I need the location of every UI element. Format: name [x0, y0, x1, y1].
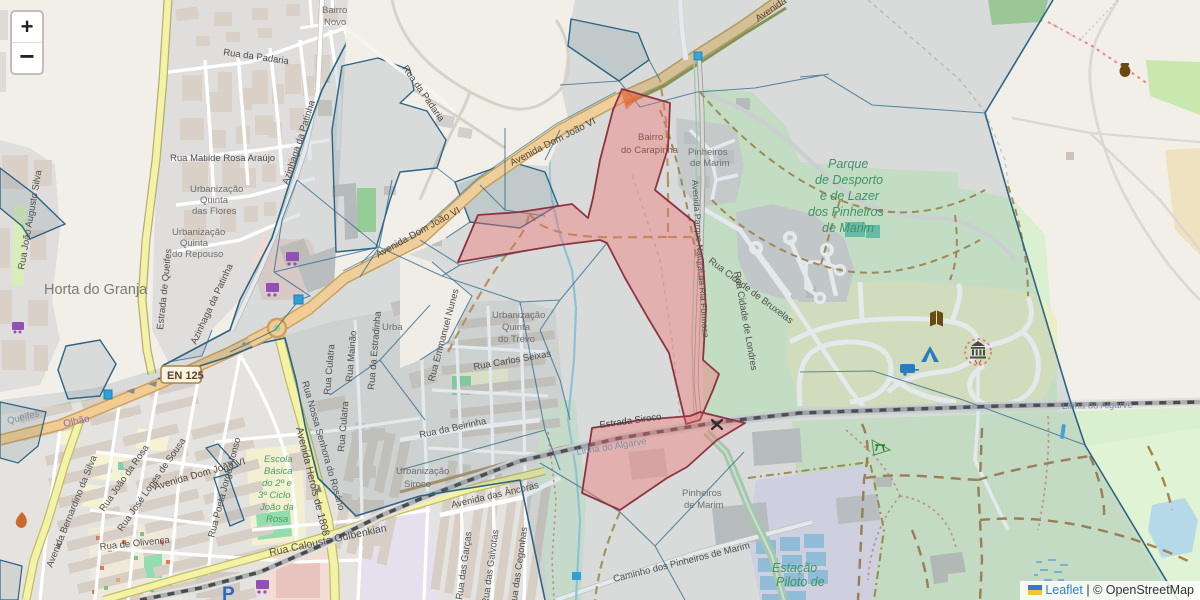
svg-text:Piloto de: Piloto de — [776, 575, 825, 589]
svg-text:Estação: Estação — [772, 561, 817, 575]
svg-text:de Marim: de Marim — [822, 221, 874, 235]
svg-text:Novo: Novo — [324, 17, 346, 28]
svg-text:3º Ciclo: 3º Ciclo — [258, 490, 291, 501]
svg-text:Urbanização: Urbanização — [492, 310, 545, 321]
svg-text:Quinta: Quinta — [180, 238, 209, 249]
svg-text:Linha do Algarve: Linha do Algarve — [1062, 400, 1133, 412]
svg-text:Básica: Básica — [264, 466, 293, 477]
svg-text:Quinta: Quinta — [200, 195, 229, 206]
svg-text:EN 125: EN 125 — [167, 370, 204, 382]
svg-text:Rua Matilde Rosa Araújo: Rua Matilde Rosa Araújo — [170, 153, 275, 164]
svg-text:Urbanização: Urbanização — [172, 227, 225, 238]
svg-text:Urbanização: Urbanização — [396, 466, 449, 477]
svg-text:do 2º e: do 2º e — [262, 478, 292, 489]
svg-text:Rosa: Rosa — [266, 514, 288, 525]
svg-text:de Marim: de Marim — [684, 500, 724, 511]
svg-text:das Flores: das Flores — [192, 206, 237, 217]
svg-text:Bairro: Bairro — [638, 132, 663, 143]
svg-text:do Trevo: do Trevo — [498, 334, 535, 345]
svg-text:Pinheiros: Pinheiros — [682, 488, 722, 499]
svg-text:Urbanização: Urbanização — [190, 184, 243, 195]
svg-text:Urba: Urba — [382, 322, 403, 333]
svg-text:Pinheiros: Pinheiros — [688, 147, 728, 158]
svg-text:Bairro: Bairro — [322, 5, 347, 16]
svg-text:Horta do Granja: Horta do Granja — [44, 282, 148, 298]
svg-text:Quinta: Quinta — [502, 322, 531, 333]
svg-text:e de Lazer: e de Lazer — [820, 189, 880, 203]
svg-text:do Repouso: do Repouso — [172, 249, 223, 260]
svg-text:João da: João da — [259, 502, 294, 513]
svg-text:de Marim: de Marim — [690, 158, 730, 169]
svg-text:de Desporto: de Desporto — [815, 173, 883, 187]
svg-text:Parque: Parque — [828, 157, 868, 171]
svg-text:Escola: Escola — [264, 454, 293, 465]
svg-text:P: P — [222, 584, 235, 600]
svg-text:Siroco: Siroco — [404, 479, 431, 490]
svg-text:do Carapinha: do Carapinha — [621, 145, 679, 156]
svg-text:dos Pinheiros: dos Pinheiros — [808, 205, 884, 219]
